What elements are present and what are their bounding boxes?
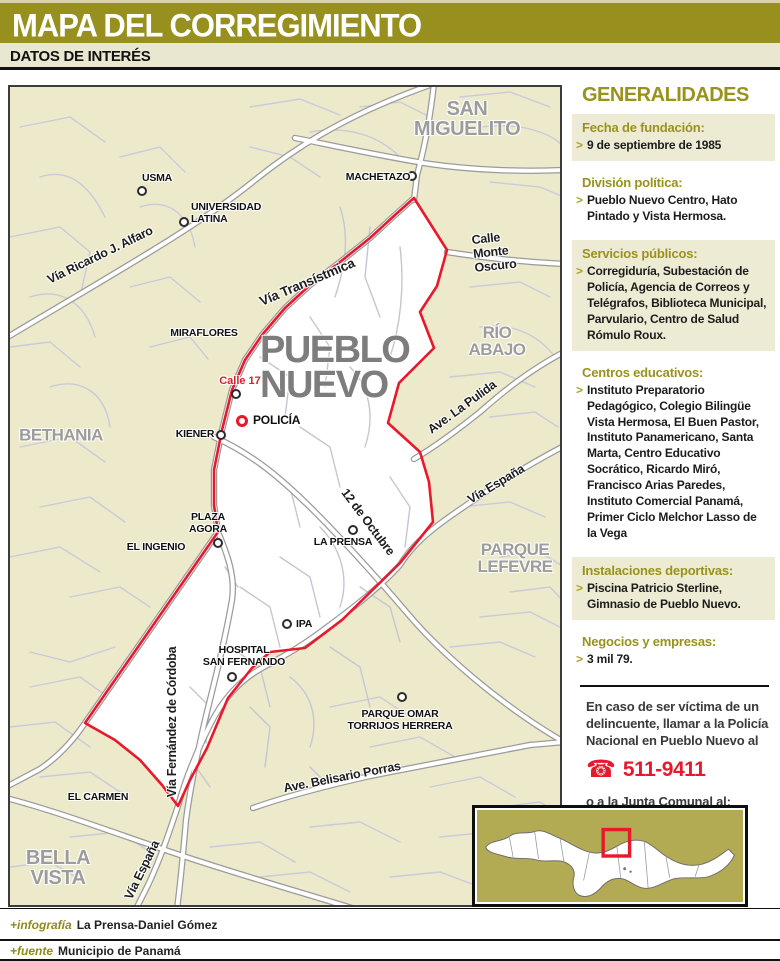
bullet-icon: > bbox=[576, 383, 587, 543]
section-text: Corregiduría, Subestación de Policía, Ag… bbox=[587, 264, 767, 344]
credit-label: +fuente bbox=[10, 944, 53, 958]
poi-marker-machetazo bbox=[407, 171, 417, 181]
section-heading: Negocios y empresas: bbox=[582, 634, 767, 649]
bullet-icon: > bbox=[576, 652, 587, 668]
sidebar: GENERALIDADES Fecha de fundación: > 9 de… bbox=[572, 84, 775, 855]
subheader-bar: DATOS DE INTERÉS bbox=[0, 43, 780, 70]
bullet-icon: > bbox=[576, 581, 587, 613]
islands bbox=[623, 867, 626, 870]
credit-infografia: +infografíaLa Prensa-Daniel Gómez bbox=[10, 918, 217, 932]
credit-fuente: +fuenteMunicipio de Panamá bbox=[10, 944, 181, 958]
panama-shape bbox=[486, 831, 735, 897]
phone-icon: ☎ bbox=[586, 758, 616, 782]
section-text: 3 mil 79. bbox=[587, 652, 633, 668]
footer-rule-mid bbox=[0, 939, 780, 941]
poi-marker-universidad-latina bbox=[179, 217, 189, 227]
panama-country-map bbox=[477, 810, 743, 902]
poi-marker-la-prensa bbox=[348, 525, 358, 535]
police-phone-number: 511-9411 bbox=[623, 758, 705, 782]
subheader-title: DATOS DE INTERÉS bbox=[0, 43, 780, 65]
inset-background bbox=[477, 810, 743, 902]
section-heading: Fecha de fundación: bbox=[582, 120, 767, 135]
poi-marker-hospital-san-fernando bbox=[227, 672, 237, 682]
bullet-icon: > bbox=[576, 138, 587, 154]
sidebar-divider bbox=[580, 685, 769, 687]
section-heading: Instalaciones deportivas: bbox=[582, 563, 767, 578]
credit-label: +infografía bbox=[10, 918, 72, 932]
poi-marker-kiener bbox=[216, 430, 226, 440]
infographic-page: MAPA DEL CORREGIMIENTO DATOS DE INTERÉS bbox=[0, 0, 780, 961]
credit-value: Municipio de Panamá bbox=[58, 944, 181, 958]
section-text: Piscina Patricio Sterline, Gimnasio de P… bbox=[587, 581, 767, 613]
header-bar: MAPA DEL CORREGIMIENTO bbox=[0, 0, 780, 43]
poi-marker-ipa bbox=[282, 619, 292, 629]
panama-locator-inset bbox=[472, 805, 748, 907]
poi-marker-usma bbox=[137, 186, 147, 196]
bullet-icon: > bbox=[576, 193, 587, 225]
bullet-icon: > bbox=[576, 264, 587, 344]
sidebar-title: GENERALIDADES bbox=[582, 84, 775, 107]
section-heading: División política: bbox=[582, 175, 767, 190]
poi-marker-calle-17 bbox=[231, 389, 241, 399]
section-fecha-fundacion: Fecha de fundación: > 9 de septiembre de… bbox=[572, 114, 775, 161]
page-title: MAPA DEL CORREGIMIENTO bbox=[0, 3, 780, 45]
section-text: Pueblo Nuevo Centro, Hato Pintado y Vist… bbox=[587, 193, 767, 225]
section-heading: Centros educativos: bbox=[582, 365, 767, 380]
section-text: Instituto Preparatorio Pedagógico, Coleg… bbox=[587, 383, 767, 543]
section-centros-educativos: Centros educativos: > Instituto Preparat… bbox=[572, 359, 775, 550]
section-instalaciones-deportivas: Instalaciones deportivas: > Piscina Patr… bbox=[572, 557, 775, 620]
section-text: 9 de septiembre de 1985 bbox=[587, 138, 721, 154]
footer-rule-top bbox=[0, 908, 780, 909]
street-map: SAN MIGUELITO RÍO ABAJO BETHANIA PARQUE … bbox=[8, 85, 562, 907]
section-servicios-publicos: Servicios públicos: > Corregiduría, Sube… bbox=[572, 240, 775, 351]
section-heading: Servicios públicos: bbox=[582, 246, 767, 261]
poi-marker-plaza-agora bbox=[213, 538, 223, 548]
street-map-graphic bbox=[10, 87, 560, 905]
credit-value: La Prensa-Daniel Gómez bbox=[77, 918, 218, 932]
emergency-text-1: En caso de ser víctima de un delincuente… bbox=[586, 699, 771, 750]
police-phone-row: ☎ 511-9411 bbox=[586, 758, 771, 782]
poi-marker-parque-omar bbox=[397, 692, 407, 702]
poi-marker-policia bbox=[236, 415, 248, 427]
section-division-politica: División política: > Pueblo Nuevo Centro… bbox=[572, 169, 775, 232]
section-negocios-empresas: Negocios y empresas: > 3 mil 79. bbox=[572, 628, 775, 675]
